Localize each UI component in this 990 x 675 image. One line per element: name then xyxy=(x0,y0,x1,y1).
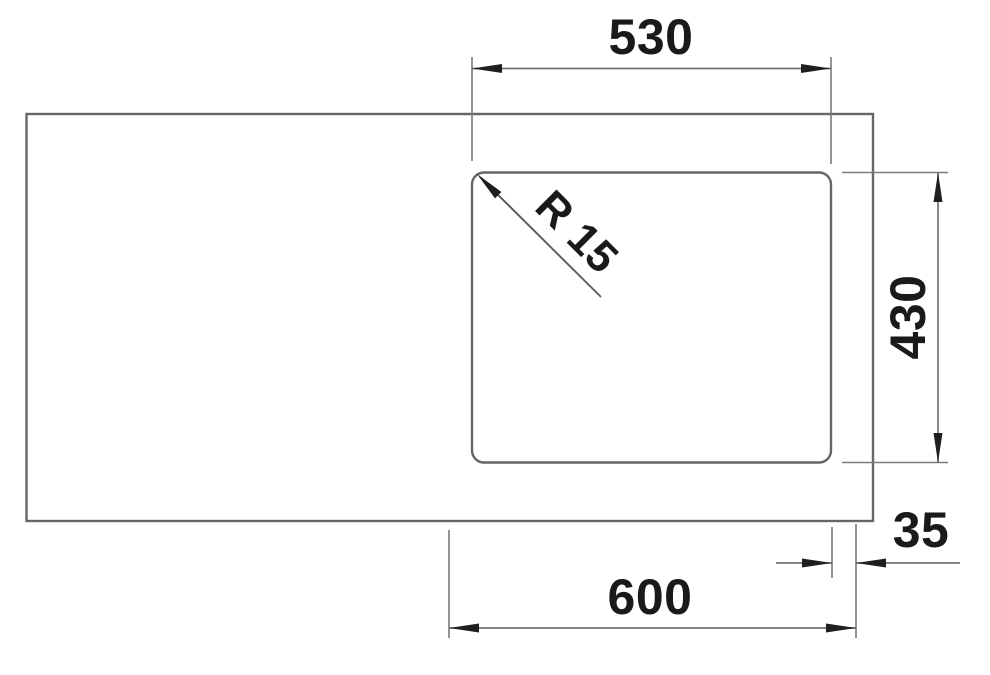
dim-530-label: 530 xyxy=(609,9,694,65)
dimension-430: 430 xyxy=(842,173,948,463)
dim-600-label: 600 xyxy=(608,569,693,625)
dim-35-label: 35 xyxy=(893,502,950,558)
radius-callout-r15: R 15 xyxy=(477,174,628,297)
sink-bowl-outline xyxy=(472,173,831,463)
sink-bowl-group xyxy=(472,173,831,463)
dimension-530: 530 xyxy=(472,9,831,164)
dim-430-arrow-bottom-icon xyxy=(934,433,943,463)
dim-600-arrow-left-icon xyxy=(449,624,479,633)
drawing-canvas: 530 430 R 15 35 xyxy=(0,0,990,675)
dimension-600: 600 xyxy=(449,530,856,638)
r15-label: R 15 xyxy=(526,181,628,283)
dim-530-arrow-right-icon xyxy=(801,64,831,73)
dimension-35: 35 xyxy=(776,502,960,638)
dim-430-arrow-top-icon xyxy=(934,173,943,203)
technical-drawing: 530 430 R 15 35 xyxy=(0,0,990,675)
dim-35-arrow-left-icon xyxy=(802,559,832,568)
dim-530-arrow-left-icon xyxy=(472,64,502,73)
dim-600-arrow-right-icon xyxy=(826,624,856,633)
r15-arrow-icon xyxy=(477,174,501,198)
dim-430-label: 430 xyxy=(880,275,936,360)
countertop-outline-group xyxy=(27,114,874,521)
dim-35-arrow-right-icon xyxy=(856,559,886,568)
countertop-outline xyxy=(27,114,874,521)
